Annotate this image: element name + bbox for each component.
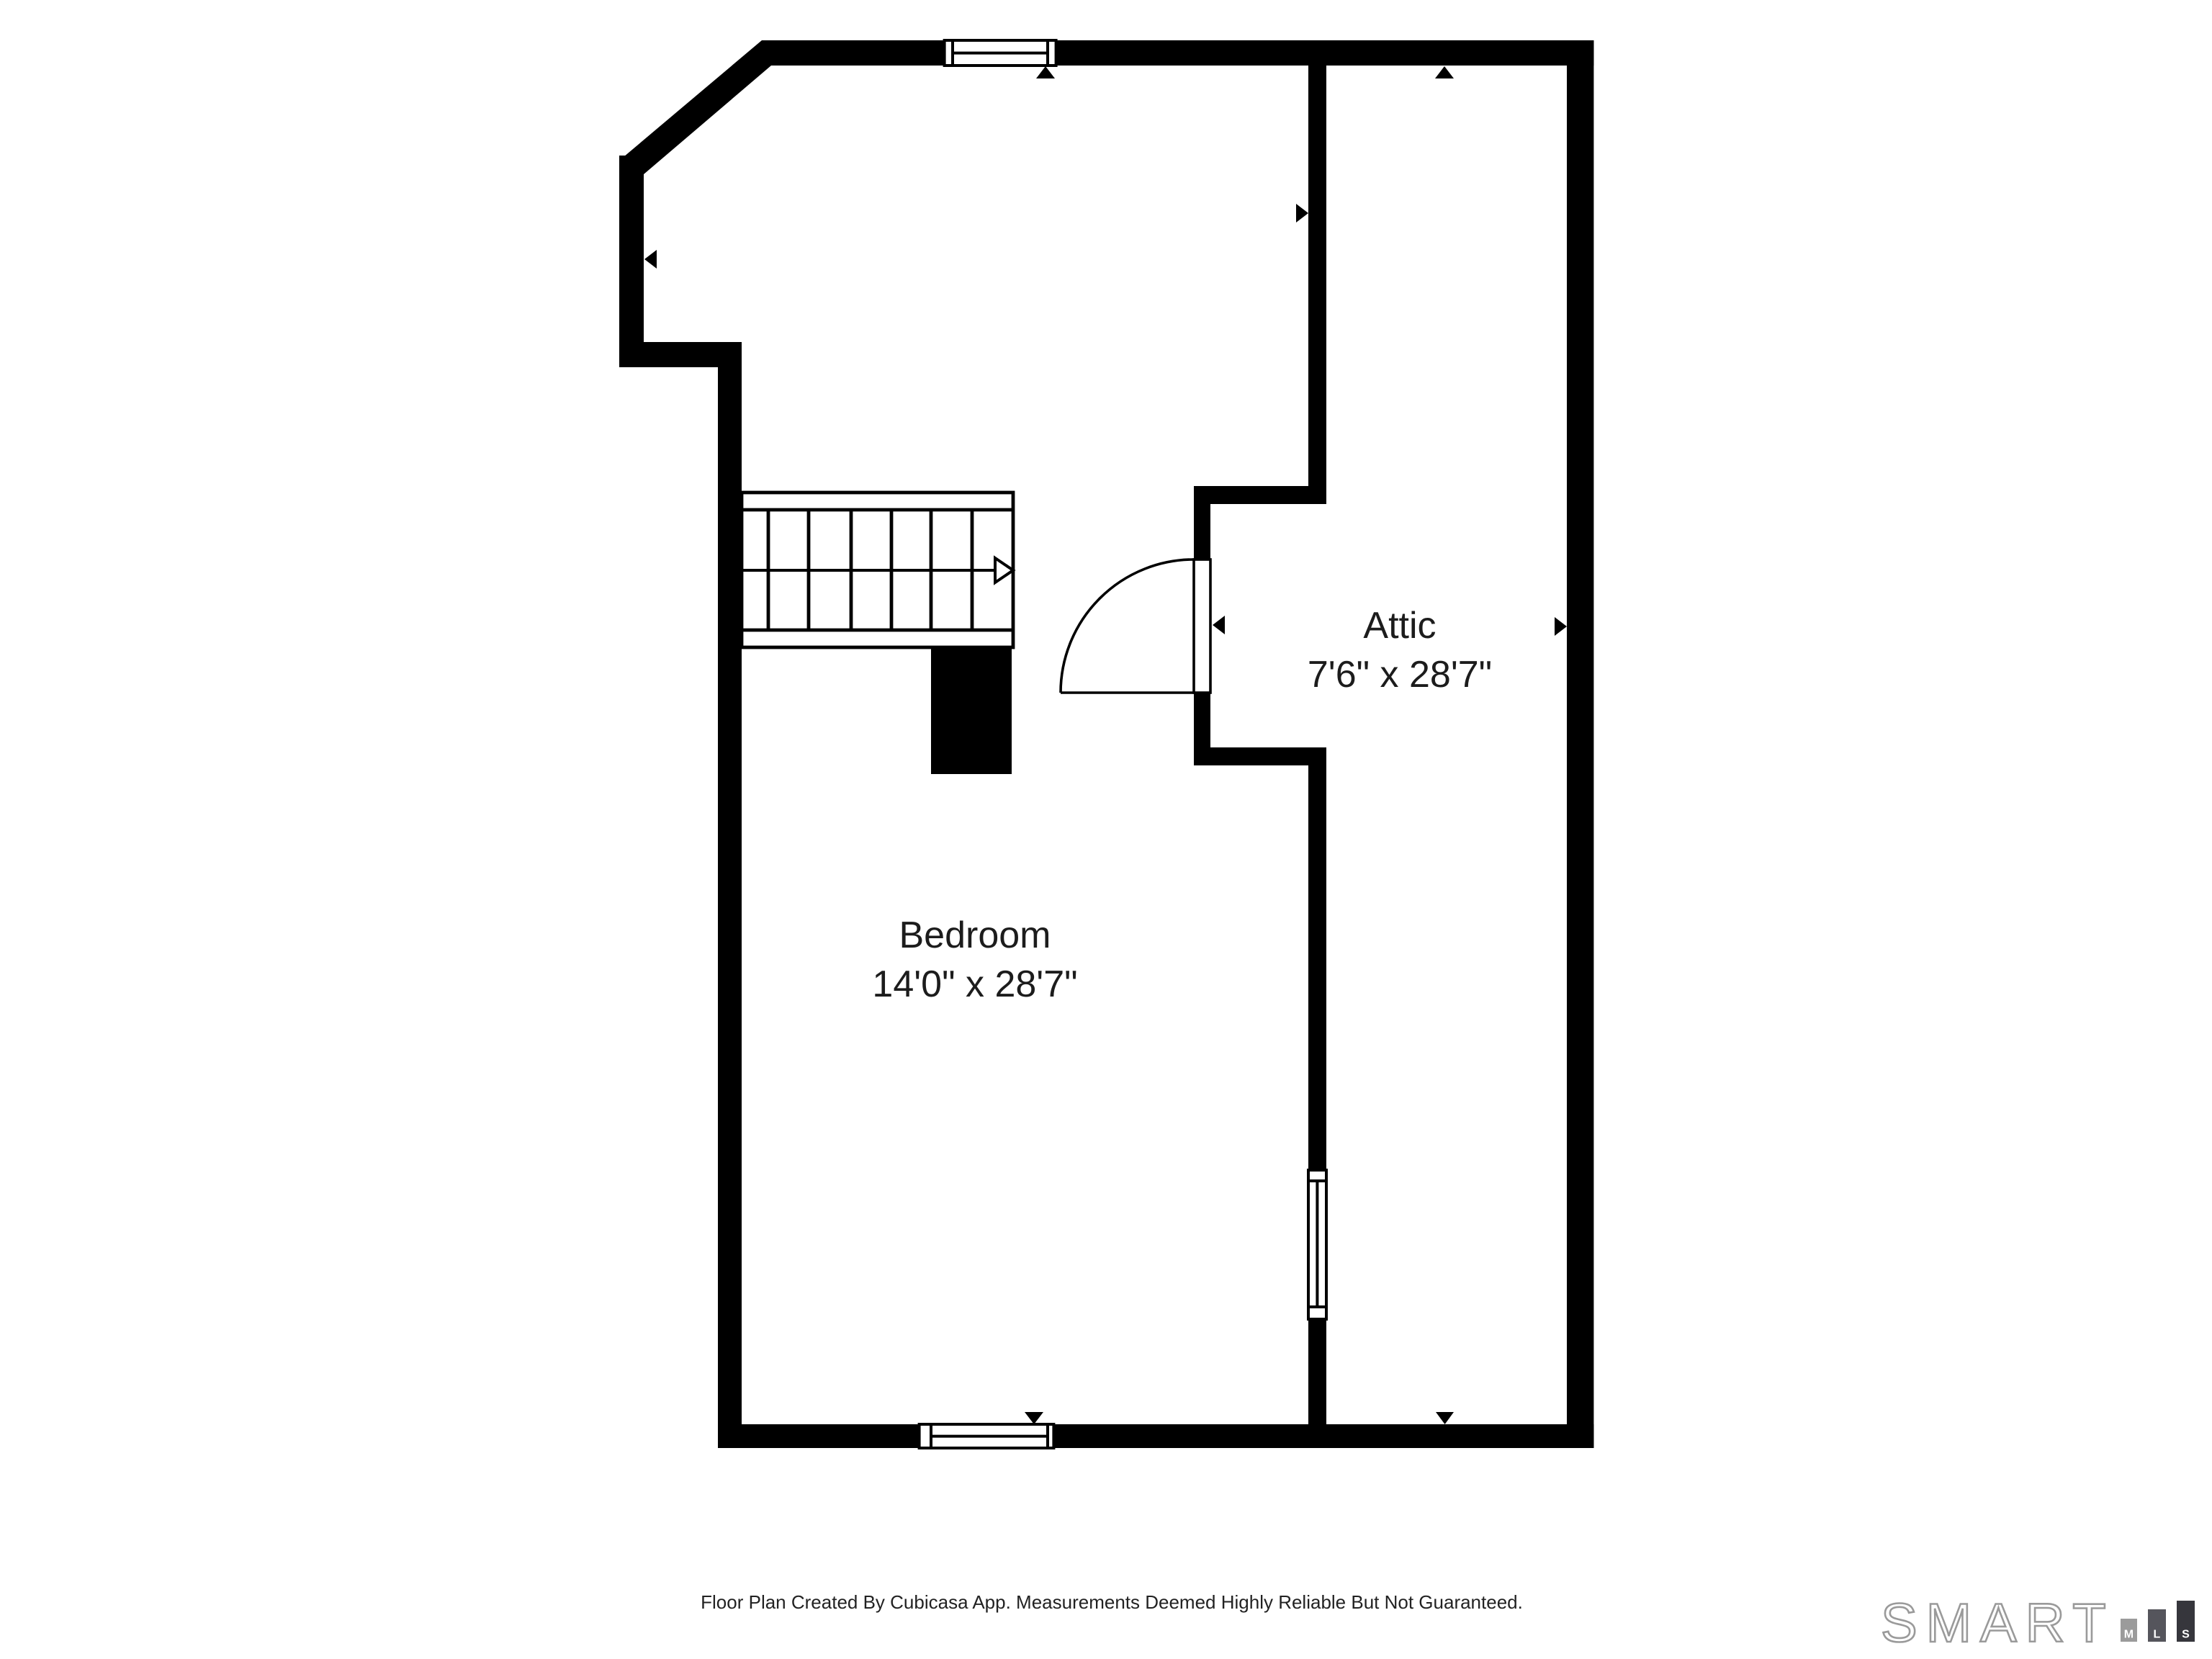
room-dims-attic: 7'6" x 28'7" bbox=[1308, 654, 1492, 696]
wall-jamb-upper bbox=[1194, 486, 1210, 559]
wall-right bbox=[1567, 40, 1593, 1448]
door-leaf bbox=[1194, 559, 1210, 693]
arrow-down-icon bbox=[1436, 1412, 1454, 1424]
logo-letter-s: S bbox=[2182, 1628, 2190, 1640]
footer-disclaimer: Floor Plan Created By Cubicasa App. Meas… bbox=[701, 1591, 1523, 1613]
walls bbox=[619, 40, 1593, 1448]
arrow-up-icon bbox=[1036, 66, 1055, 78]
floorplan-page: Attic 7'6" x 28'7" Bedroom 14'0" x 28'7"… bbox=[0, 0, 2212, 1659]
arrow-down-icon bbox=[1025, 1412, 1043, 1424]
wall-divider-lower bbox=[1308, 747, 1326, 1424]
wall-bottom bbox=[718, 1424, 1593, 1448]
floorplan-canvas: Attic 7'6" x 28'7" Bedroom 14'0" x 28'7"… bbox=[0, 0, 2212, 1659]
window-top bbox=[945, 40, 1056, 66]
wall-jog-lower bbox=[1194, 747, 1326, 765]
wall-top bbox=[762, 40, 1593, 66]
room-label-attic: Attic bbox=[1363, 605, 1436, 647]
wall-jog-upper bbox=[1194, 486, 1326, 504]
logo-brand-text: SMART bbox=[1881, 1593, 2115, 1654]
window-divider bbox=[1308, 1170, 1326, 1319]
wall-left-lower bbox=[718, 342, 742, 1448]
door-swing-arc bbox=[1061, 559, 1194, 693]
dimension-arrows bbox=[644, 66, 1567, 1424]
wall-divider-upper bbox=[1308, 40, 1326, 504]
wall-chamfer bbox=[619, 40, 771, 174]
wall-left-upper bbox=[619, 156, 644, 367]
staircase bbox=[742, 493, 1013, 647]
room-dims-bedroom: 14'0" x 28'7" bbox=[872, 963, 1077, 1005]
arrow-right-icon bbox=[1555, 617, 1567, 636]
understair-block bbox=[931, 647, 1012, 774]
smartmls-logo: SMART M L S bbox=[1881, 1593, 2195, 1654]
room-label-bedroom: Bedroom bbox=[899, 914, 1051, 956]
window-bottom bbox=[920, 1424, 1054, 1448]
arrow-up-icon bbox=[1435, 66, 1454, 78]
arrow-left-icon bbox=[644, 250, 657, 269]
arrow-left-icon bbox=[1213, 616, 1225, 634]
logo-letter-l: L bbox=[2154, 1628, 2161, 1640]
arrow-right-icon bbox=[1296, 204, 1308, 222]
door bbox=[1061, 559, 1210, 693]
logo-letter-m: M bbox=[2124, 1628, 2134, 1640]
